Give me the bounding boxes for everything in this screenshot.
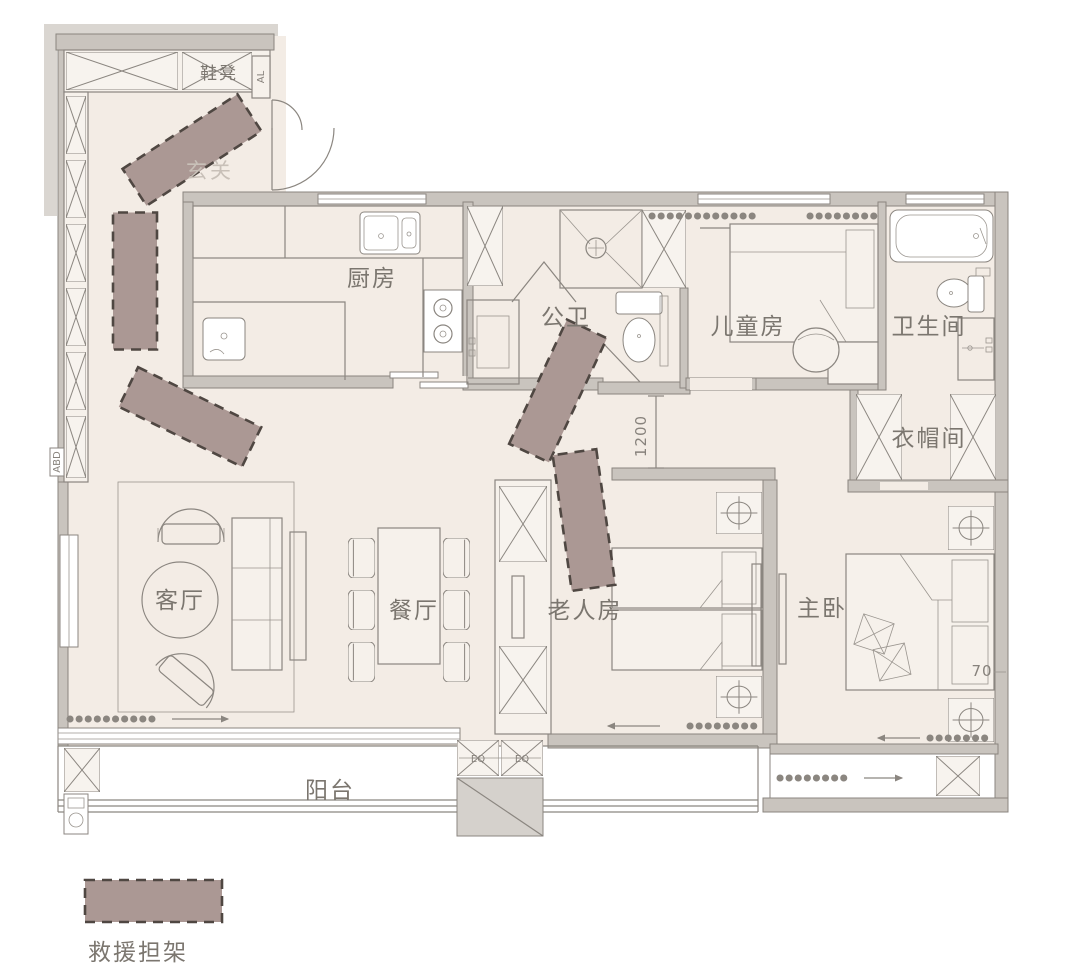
dining-chair xyxy=(348,590,375,630)
nightstand-icon xyxy=(716,676,762,718)
nightstand-icon xyxy=(716,492,762,534)
svg-text:ABD: ABD xyxy=(52,451,63,473)
dimension-eq-right: EQ xyxy=(515,754,529,765)
label-living-room: 客厅 xyxy=(155,588,205,613)
electrical-panel: ABD xyxy=(50,448,64,476)
dining-chair xyxy=(443,590,470,630)
stretcher-hall-1 xyxy=(113,213,157,350)
sofa-icon xyxy=(232,518,282,670)
nightstand-icon xyxy=(948,698,994,742)
label-shoe-bench: 鞋凳 xyxy=(200,64,238,83)
legend-stretcher-swatch xyxy=(85,880,222,922)
entry-door-frame-label: AL xyxy=(256,70,267,83)
legend: 救援担架 xyxy=(85,880,222,965)
window-living-bottom xyxy=(58,728,460,744)
elderly-cabinet-column xyxy=(495,480,551,734)
shaft xyxy=(457,740,543,836)
label-elderly-room: 老人房 xyxy=(548,598,623,623)
balcony-cabinet-icon xyxy=(64,748,100,792)
balcony xyxy=(58,740,758,836)
twin-bed-icon xyxy=(612,548,762,608)
label-master-bedroom: 主卧 xyxy=(797,596,847,621)
label-dining-room: 餐厅 xyxy=(389,598,439,623)
label-entry: 玄关 xyxy=(186,159,234,183)
duct-shaft-icon xyxy=(467,206,503,286)
washing-machine-icon xyxy=(64,794,88,834)
window-living-left xyxy=(60,535,78,647)
window-bathroom xyxy=(906,194,984,204)
nightstand-icon xyxy=(948,506,994,550)
exterior-shadow-left xyxy=(44,24,57,216)
hall-cabinet-column xyxy=(64,92,88,482)
label-cloakroom: 衣帽间 xyxy=(892,426,967,451)
label-balcony: 阳台 xyxy=(305,778,355,803)
label-kids-room: 儿童房 xyxy=(711,314,786,339)
window-kids-room xyxy=(698,194,830,204)
entry-closet-icon xyxy=(66,52,178,90)
ac-unit-icon xyxy=(936,756,980,796)
twin-bed-icon xyxy=(612,610,762,670)
dimension-eq-left: EQ xyxy=(471,754,485,765)
master-window-strip xyxy=(770,754,995,798)
dining-chair xyxy=(348,642,375,682)
kitchen-sink-icon xyxy=(360,212,420,254)
svg-text:70: 70 xyxy=(971,662,992,680)
dining-chair xyxy=(443,538,470,578)
dining-chair xyxy=(443,642,470,682)
floor-plan-page: AL ABD xyxy=(0,0,1080,975)
label-bathroom: 卫生间 xyxy=(892,314,967,339)
label-guest-bath: 公卫 xyxy=(541,305,591,330)
window-kitchen xyxy=(318,194,426,204)
label-kitchen: 厨房 xyxy=(347,266,397,291)
kids-wardrobe-icon xyxy=(642,210,686,288)
legend-stretcher-label: 救援担架 xyxy=(88,940,188,965)
dining-chair xyxy=(348,538,375,578)
svg-text:1200: 1200 xyxy=(632,415,650,457)
dining-table xyxy=(378,528,440,664)
floor-plan-drawing: AL ABD xyxy=(0,0,1080,975)
bathtub-icon xyxy=(890,210,993,262)
